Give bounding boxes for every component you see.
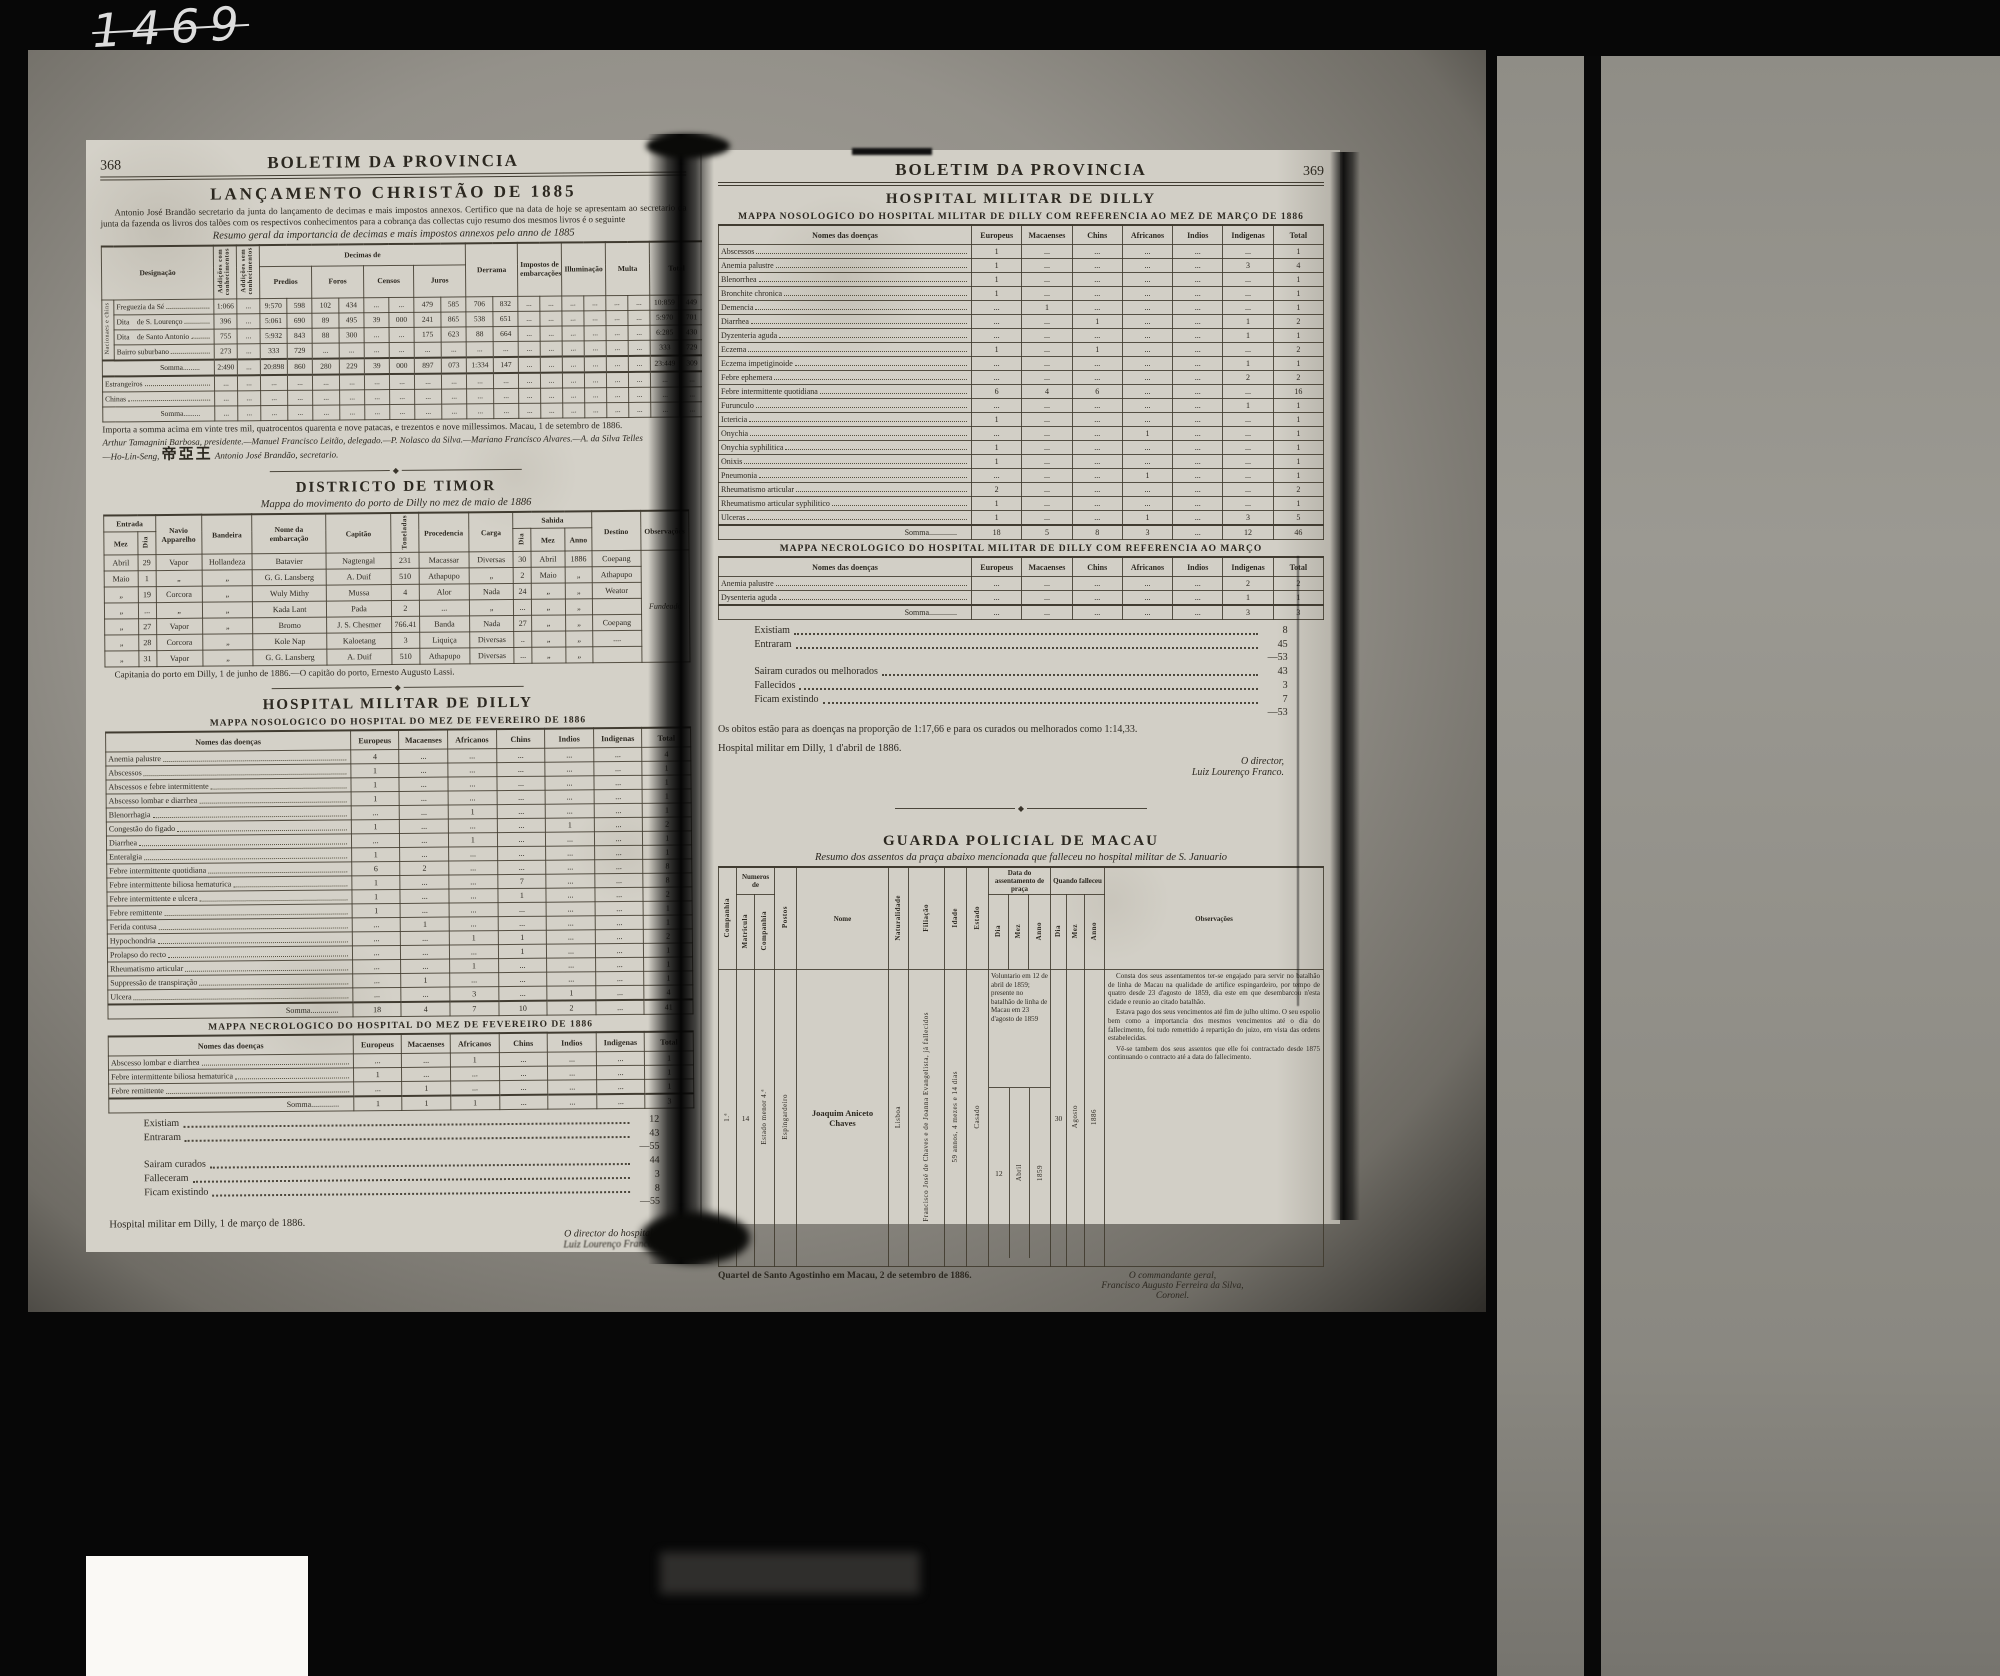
column-header-label: Filiação xyxy=(923,904,930,932)
table-cell: ... xyxy=(1072,371,1122,385)
table-cell: ... xyxy=(365,389,390,404)
table-cell: ... xyxy=(972,605,1022,620)
table-cell: ... xyxy=(1122,399,1172,413)
table-cell: 538 xyxy=(466,311,493,326)
table-cell: Furunculo xyxy=(719,399,972,413)
table-cell: ... xyxy=(1022,273,1072,287)
table-cell: ... xyxy=(1173,343,1223,357)
table-cell: 690 xyxy=(287,313,312,328)
table-cell: ... xyxy=(1022,591,1072,606)
table-cell: ... xyxy=(340,390,365,405)
stat-label: Sairam curados xyxy=(144,1158,206,1172)
table-row: 1.ª 14 Estado menor 4.ª Espingardeiro Jo… xyxy=(719,970,1324,1267)
table-cell: „ xyxy=(469,568,513,584)
table-cell: ... xyxy=(238,405,261,420)
table-cell: 1 xyxy=(402,1081,451,1096)
table-cell: 18 xyxy=(972,525,1022,540)
table-cell: 1 xyxy=(1122,469,1172,483)
table-cell: Abscessos xyxy=(719,245,972,259)
quartel-line: Quartel de Santo Agostinho em Macau, 2 d… xyxy=(718,1271,1021,1301)
table-cell: ... xyxy=(607,372,629,388)
table-cell: ... xyxy=(519,373,541,389)
table-cell: ... xyxy=(562,326,584,341)
column-header: Indios xyxy=(1173,557,1223,577)
table-cell: 1 xyxy=(972,273,1022,287)
table-cell: Nada xyxy=(469,584,513,600)
table-cell: Vapor xyxy=(156,555,202,571)
table-cell: ... xyxy=(1122,591,1172,606)
table-cell: ... xyxy=(451,1081,500,1096)
table-cell: 495 xyxy=(339,313,364,328)
table-cell: ... xyxy=(540,296,562,311)
table-cell: ... xyxy=(1022,287,1072,301)
table-cell: ... xyxy=(497,861,546,875)
table-cell: 1 xyxy=(1273,329,1323,343)
table-cell: ... xyxy=(563,372,585,388)
table-cell: ... xyxy=(1122,413,1172,427)
table-cell: G. G. Lansberg xyxy=(252,570,326,587)
table-cell: ... xyxy=(1173,525,1223,540)
stat-value: 3 xyxy=(1262,679,1288,692)
table-cell: Febre intermittente quotidiana xyxy=(719,385,972,399)
table-cell: 000 xyxy=(389,358,414,374)
table-cell: ... xyxy=(448,749,497,763)
table-cell: ... xyxy=(1223,483,1273,497)
column-header-label: Matricula xyxy=(742,914,749,948)
table-cell: ... xyxy=(1122,301,1172,315)
table-cell: A. Duif xyxy=(326,569,391,586)
table-cell: G. G. Lansberg xyxy=(253,650,327,667)
assentamento-values: 12 Abril 1859 xyxy=(989,1088,1050,1258)
table-cell: ... xyxy=(1072,441,1122,455)
table-cell: ... xyxy=(1223,385,1273,399)
table-cell xyxy=(593,647,642,663)
header-row: Nomes das doençasEuropeusMacaensesChinsA… xyxy=(719,225,1324,245)
table-cell: ... xyxy=(497,833,546,847)
table-cell: Athapupo xyxy=(419,648,470,664)
table-cell: ... xyxy=(545,762,594,776)
table-cell: Demencia xyxy=(719,301,972,315)
table-cell: 1 xyxy=(1022,301,1072,315)
table-cell: Abril xyxy=(104,555,138,571)
director-title: O director, xyxy=(718,756,1284,767)
table-cell: 1 xyxy=(1072,343,1122,357)
table-cell: ... xyxy=(497,805,546,819)
table-cell: Francisco José de Chaves e de Joanna Eva… xyxy=(909,970,945,1267)
table-cell: „ xyxy=(105,619,139,635)
table-cell: 1 xyxy=(352,876,401,890)
table-row: Diarrhea......1......12 xyxy=(719,315,1324,329)
table-cell: ... xyxy=(972,357,1022,371)
necro-fevereiro-table: Nomes das doençasEuropeusMacaensesAfrica… xyxy=(108,1031,695,1114)
table-cell: Dita de Santo Antonio xyxy=(114,329,214,345)
column-header: Africanos xyxy=(448,730,497,750)
table-row: Demencia...1............1 xyxy=(719,301,1324,315)
table-cell: ... xyxy=(449,847,498,861)
table-cell: 1 xyxy=(351,778,400,792)
table-cell: ... xyxy=(415,404,442,419)
column-header: Africanos xyxy=(1122,557,1172,577)
column-header: Matricula xyxy=(737,895,755,970)
table-cell: ... xyxy=(497,847,546,861)
table-cell: ... xyxy=(402,1053,451,1067)
table-cell: ... xyxy=(541,372,563,388)
table-cell: ... xyxy=(237,328,260,343)
table-cell: ... xyxy=(400,875,449,889)
table-cell: ... xyxy=(595,930,644,944)
table-cell: 1 xyxy=(450,959,499,973)
table-cell: „ xyxy=(565,567,592,583)
idade-value: 59 annos, 4 mezes e 14 dias xyxy=(952,1071,959,1162)
table-row: Bronchite chronica1...............1 xyxy=(719,287,1324,301)
table-cell: 28 xyxy=(138,635,156,651)
noso-fevereiro-table: Nomes das doençasEuropeusMacaensesAfrica… xyxy=(105,727,693,1020)
table-cell: ... xyxy=(545,790,594,804)
table-cell: ... xyxy=(215,391,238,406)
column-header: Postos xyxy=(775,867,797,970)
table-cell: Abril xyxy=(531,551,565,567)
column-header: Chins xyxy=(496,729,545,749)
table-cell: „ xyxy=(566,647,593,663)
table-cell: ... xyxy=(606,310,628,325)
stat-label: Existiam xyxy=(144,1117,180,1130)
table-cell: ... xyxy=(467,403,494,418)
table-cell: ... xyxy=(1173,469,1223,483)
table-row: Abscessos1...............1 xyxy=(719,245,1324,259)
table-cell: ... xyxy=(1173,591,1223,606)
table-cell: ... xyxy=(1122,455,1172,469)
table-cell: ... xyxy=(1173,329,1223,343)
table-cell: ... xyxy=(449,917,498,931)
column-header-label: Anno xyxy=(1036,922,1043,940)
table-cell: Eczema xyxy=(719,343,972,357)
table-cell: Somma.............. xyxy=(108,1003,353,1020)
table-cell: „ xyxy=(202,570,253,586)
table-cell: 2 xyxy=(1273,371,1323,385)
stat-line: Ficam existindo7 xyxy=(754,693,1287,706)
table-cell: 729 xyxy=(287,343,312,359)
assentamento-mez: Abril xyxy=(1010,1088,1031,1258)
table-cell: ... xyxy=(400,889,449,903)
table-cell: 6 xyxy=(352,862,401,876)
table-cell: „ xyxy=(202,586,253,602)
table-cell: 18 xyxy=(353,1002,402,1017)
table-cell: ... xyxy=(352,960,401,974)
table-cell: ... xyxy=(1122,315,1172,329)
table-cell: ... xyxy=(1122,287,1172,301)
table-cell: ... xyxy=(548,1095,597,1110)
column-header-label: Dia xyxy=(143,536,150,548)
table-cell: ... xyxy=(546,846,595,860)
table-cell: ... xyxy=(606,356,628,372)
column-header: Chins xyxy=(1072,225,1122,245)
table-cell: Casado xyxy=(967,970,989,1267)
table-cell: ... xyxy=(499,1081,548,1096)
table-cell: Onychia xyxy=(719,427,972,441)
column-header: Dia xyxy=(989,895,1009,970)
table-cell: 300 xyxy=(339,328,364,343)
table-cell: Bronchite chronica xyxy=(719,287,972,301)
table-cell: ... xyxy=(595,916,644,930)
table-cell: ... xyxy=(1022,483,1072,497)
column-header: Censos xyxy=(363,265,413,297)
table-cell: 1 xyxy=(1273,357,1323,371)
table-row: Febre ephemera...............22 xyxy=(719,371,1324,385)
table-cell: ... xyxy=(494,388,519,403)
table-cell: ... xyxy=(312,343,339,359)
table-cell: ... xyxy=(596,1000,645,1015)
table-cell: ... xyxy=(400,819,449,833)
table-cell: 510 xyxy=(392,649,419,665)
table-cell: ... xyxy=(606,325,628,340)
table-cell: 1 xyxy=(351,764,400,778)
table-cell: ... xyxy=(1072,577,1122,591)
table-cell: „ xyxy=(202,602,253,618)
stat-label: Existiam xyxy=(754,624,790,637)
column-header-label: Anno xyxy=(1091,922,1098,940)
table-cell: ... xyxy=(1022,441,1072,455)
table-cell: 843 xyxy=(287,328,312,343)
table-cell: ... xyxy=(547,930,596,944)
table-cell: Nacionaes e chins xyxy=(102,300,115,361)
table-cell: ... xyxy=(606,340,628,356)
table-cell: ... xyxy=(389,327,414,342)
table-cell: 46 xyxy=(1273,525,1323,540)
table-cell: „ xyxy=(202,618,253,634)
table-cell: ... xyxy=(448,819,497,833)
table-cell: ... xyxy=(562,311,584,326)
table-cell: ... xyxy=(547,944,596,958)
table-cell: ... xyxy=(972,577,1022,591)
table-cell: ... xyxy=(562,356,584,372)
table-cell: 1 xyxy=(972,441,1022,455)
column-header: Dia xyxy=(513,529,531,552)
table-cell: 1 xyxy=(352,904,401,918)
table-cell: ... xyxy=(138,603,156,619)
column-header: Nomes das doenças xyxy=(108,1035,353,1057)
table-cell: Weator xyxy=(592,583,641,599)
table-cell: 3 xyxy=(450,987,499,1002)
table-cell: „ xyxy=(532,631,566,647)
column-header: Dia xyxy=(1051,895,1067,970)
column-header: Derrama xyxy=(465,243,517,297)
table-cell: ... xyxy=(399,763,448,777)
table-cell: 7 xyxy=(497,875,546,889)
table-cell: ... xyxy=(353,1054,402,1068)
table-cell: 1 xyxy=(1273,273,1323,287)
table-cell: 479 xyxy=(414,297,441,312)
table-cell: ... xyxy=(497,819,546,833)
lancamento-subtitle: Resumo geral da importancia de decimas e… xyxy=(101,226,687,242)
table-cell: ... xyxy=(1072,329,1122,343)
table-cell: 3 xyxy=(1223,259,1273,273)
table-cell: „ xyxy=(532,647,566,663)
table-cell: 1 xyxy=(449,931,498,945)
table-cell: ... xyxy=(547,958,596,972)
section-title-hospital: HOSPITAL MILITAR DE DILLY xyxy=(105,694,691,716)
fallecimento-dia: 30 xyxy=(1055,1114,1063,1123)
table-cell xyxy=(593,599,642,615)
table-cell: ... xyxy=(584,356,606,372)
table-cell: Hollandeza xyxy=(202,554,253,570)
table-cell: „ xyxy=(105,635,139,651)
column-header: Navio Apparelho xyxy=(155,514,202,554)
table-cell: ... xyxy=(499,1095,548,1110)
table-cell: ... xyxy=(499,1053,548,1067)
table-cell: ... xyxy=(499,1067,548,1081)
table-cell: ... xyxy=(1173,441,1223,455)
table-cell: 2 xyxy=(1273,483,1323,497)
column-header: Filiação xyxy=(909,867,945,970)
stat-sum: —53 xyxy=(754,652,1287,663)
column-header-label: Addições com conhecimentos xyxy=(218,246,232,296)
table-cell: ... xyxy=(584,340,606,356)
table-cell: 1 xyxy=(351,792,400,806)
table-cell: 30 xyxy=(513,552,531,568)
table-cell: Coepang xyxy=(592,551,641,567)
table-cell: ... xyxy=(628,310,650,325)
table-cell: ... xyxy=(545,776,594,790)
observacao-paragraph: Consta dos seus assentamentos ter-se eng… xyxy=(1108,972,1320,1006)
table-cell: 766.41 xyxy=(392,617,419,633)
table-cell: 2 xyxy=(547,1001,596,1016)
column-header: Macaenses xyxy=(1022,225,1072,245)
column-header: Quando falleceu xyxy=(1051,867,1105,895)
table-cell: 897 xyxy=(414,357,441,373)
table-cell: 27 xyxy=(514,616,532,632)
table-cell: ... xyxy=(1173,259,1223,273)
assentamento-anno-label: 1859 xyxy=(1037,1165,1044,1181)
stat-line: Fallecidos3 xyxy=(754,679,1287,692)
table-cell: 39 xyxy=(364,312,389,327)
table-cell: 9:570 xyxy=(260,298,287,313)
table-cell: ... xyxy=(1173,245,1223,259)
table-row: Blenorrhea1...............1 xyxy=(719,273,1324,287)
table-cell: ... xyxy=(400,791,449,805)
obitos-proportion: Os obitos estão para as doenças na propo… xyxy=(718,724,1324,735)
table-cell: 280 xyxy=(312,358,339,374)
column-header: Mez xyxy=(1009,895,1029,970)
table-cell: Wuly Mithy xyxy=(253,586,327,603)
table-cell: ... xyxy=(498,959,547,973)
table-cell: ... xyxy=(1072,605,1122,620)
column-header: Dia xyxy=(137,532,155,555)
scan-mark xyxy=(852,148,932,155)
column-header: Mez xyxy=(1067,895,1085,970)
column-header: Indios xyxy=(545,729,594,749)
column-header-label: Postos xyxy=(782,906,789,928)
page-368: 368 BOLETIM DA PROVINCIA LANÇAMENTO CHRI… xyxy=(86,140,700,1252)
companhia-value: 1.ª xyxy=(724,1113,731,1122)
table-cell: 865 xyxy=(441,312,466,327)
table-cell: „ xyxy=(565,599,592,615)
table-cell: ... xyxy=(399,749,448,763)
table-cell: ... xyxy=(312,374,339,390)
table-cell: 1 xyxy=(401,917,450,931)
scan-smudge xyxy=(660,1552,920,1594)
table-cell: 1 xyxy=(972,287,1022,301)
table-cell: ... xyxy=(288,390,313,405)
table-cell: ... xyxy=(261,405,288,420)
stat-label: Fallecidos xyxy=(754,679,795,692)
observacao-paragraph: Estava pago dos seus vencimentos até fim… xyxy=(1108,1008,1320,1042)
table-cell: 1 xyxy=(1273,497,1323,511)
table-cell: ... xyxy=(1223,343,1273,357)
assentamento-mez-label: Abril xyxy=(1016,1164,1023,1181)
table-cell: 4 xyxy=(391,585,418,601)
table-cell: Macassar xyxy=(419,552,470,568)
table-cell: Batavier xyxy=(252,554,326,571)
page-369: BOLETIM DA PROVINCIA 369 HOSPITAL MILITA… xyxy=(702,150,1340,1224)
table-cell: Maio xyxy=(104,571,138,587)
table-cell: ... xyxy=(1173,455,1223,469)
observacoes-cell: Consta dos seus assentamentos ter-se eng… xyxy=(1105,970,1324,1267)
table-cell: ... xyxy=(451,1067,500,1081)
table-cell: 147 xyxy=(493,357,518,373)
filiacao-value: Francisco José de Chaves e de Joanna Eva… xyxy=(923,1012,930,1222)
table-cell: ... xyxy=(519,403,541,418)
table-cell: Eczema impetiginoide xyxy=(719,357,972,371)
table-cell: ... xyxy=(563,388,585,403)
table-cell: ... xyxy=(1173,511,1223,526)
table-cell: ... xyxy=(1173,301,1223,315)
director-signature: O director, Luiz Lourenço Franco. xyxy=(718,756,1324,778)
table-cell: 860 xyxy=(287,359,312,375)
table-cell: 1 xyxy=(1273,399,1323,413)
table-cell: 3 xyxy=(1223,511,1273,526)
table-cell: ... xyxy=(584,325,606,340)
table-cell: ... xyxy=(1173,357,1223,371)
table-cell: 3 xyxy=(1223,605,1273,620)
section-divider: ◆ xyxy=(103,463,689,477)
column-header: Idade xyxy=(945,867,967,970)
table-cell: ... xyxy=(449,861,498,875)
table-cell: 2 xyxy=(1273,315,1323,329)
table-cell: „ xyxy=(104,603,138,619)
table-cell: 1 xyxy=(1223,357,1273,371)
table-cell: 1 xyxy=(972,343,1022,357)
table-cell: ... xyxy=(390,404,415,419)
table-cell: ... xyxy=(1072,455,1122,469)
table-cell: ... xyxy=(1072,259,1122,273)
table-cell: 1 xyxy=(138,571,156,587)
table-cell: Somma......... xyxy=(103,406,215,422)
table-cell: „ xyxy=(203,634,254,650)
table-cell: Somma......... xyxy=(102,359,214,376)
table-cell: 598 xyxy=(287,298,312,313)
table-cell: ... xyxy=(594,832,643,846)
table-cell: 000 xyxy=(389,312,414,327)
table-cell: Onixis xyxy=(719,455,972,469)
table-cell: ... xyxy=(415,389,442,404)
necro-table-title: MAPPA NECROLOGICO DO HOSPITAL MILITAR DE… xyxy=(718,544,1324,554)
table-cell: ... xyxy=(1072,427,1122,441)
table-cell: A. Duif xyxy=(327,649,392,666)
table-cell: Banda xyxy=(419,616,470,632)
table-cell: 1 xyxy=(401,973,450,987)
table-cell: ... xyxy=(1072,301,1122,315)
table-cell: ... xyxy=(1072,287,1122,301)
table-cell: Nagtengal xyxy=(326,553,391,570)
table-cell: 5:061 xyxy=(260,313,287,328)
table-cell: ... xyxy=(1122,329,1172,343)
table-cell: ... xyxy=(1122,357,1172,371)
table-cell: Vapor xyxy=(156,619,202,635)
column-header: Nome xyxy=(797,867,889,970)
table-cell: J. S. Chesmer xyxy=(327,617,392,634)
table-cell: ... xyxy=(441,342,466,358)
table-cell: ... xyxy=(237,298,260,313)
